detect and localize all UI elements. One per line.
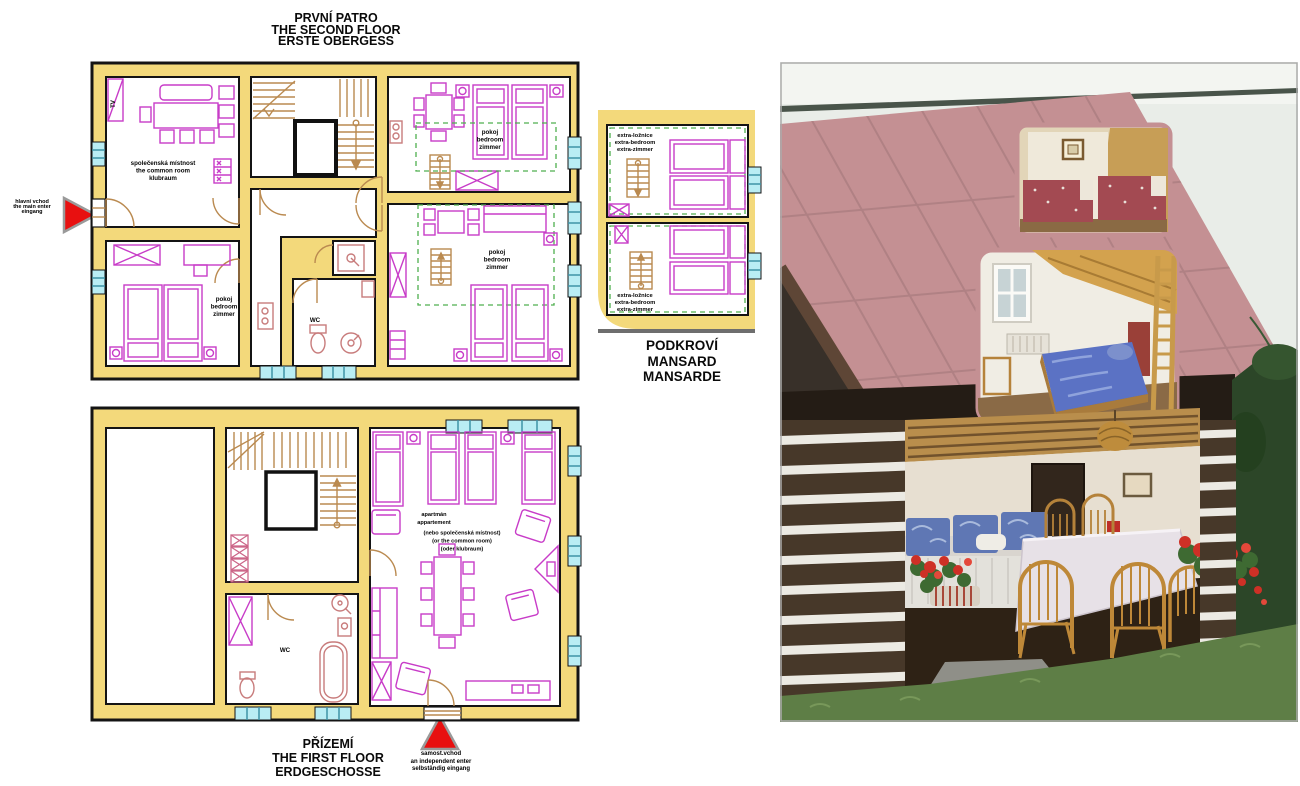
- entrance-line: an independent enter: [395, 759, 487, 767]
- title-line: PODKROVÍ: [602, 338, 762, 354]
- room-label: zimmer: [486, 264, 508, 271]
- wall-picture: [1124, 474, 1151, 496]
- room-label: extra-bedroom: [615, 140, 656, 146]
- room-label: extra-zimmer: [617, 307, 654, 313]
- ground-floor-rooms: [106, 428, 560, 706]
- entrance-line: samost.vchod: [395, 751, 487, 759]
- room-label: pokoj: [216, 296, 233, 303]
- independent-entrance-label: samost.vchod an independent enter selbst…: [395, 751, 487, 774]
- entrance-line: eingang: [2, 210, 62, 215]
- room-label: appartement: [417, 520, 451, 526]
- room-label: pokoj: [482, 129, 499, 136]
- room-label: bedroom: [211, 304, 238, 311]
- wc-label: WC: [280, 647, 291, 654]
- first-floor-plan: společenská místnost the common room klu…: [88, 59, 585, 390]
- first-floor-title: PRVNÍ PATRO THE SECOND FLOOR ERSTE OBERG…: [240, 13, 432, 48]
- attic-bedroom-inset: [1017, 125, 1170, 235]
- house-photo: [780, 62, 1298, 722]
- tv-label: TV: [110, 99, 117, 108]
- room-label: bedroom: [477, 137, 504, 144]
- title-line: PŘÍZEMÍ: [232, 737, 424, 751]
- room-label: zimmer: [213, 311, 235, 318]
- bedroom-inset: [978, 250, 1177, 422]
- room-label: apartmán: [421, 512, 447, 518]
- title-line: MANSARD: [602, 354, 762, 370]
- mansard-title: PODKROVÍ MANSARD MANSARDE: [602, 338, 762, 385]
- floorplan-sheet: PRVNÍ PATRO THE SECOND FLOOR ERSTE OBERG…: [0, 0, 1300, 786]
- room-label: extra-bedroom: [615, 300, 656, 306]
- entrance-line: selbständig eingang: [395, 766, 487, 774]
- stair-shaft: [295, 121, 336, 175]
- ground-floor-plan: apartmán appartement (nebo společenská m…: [88, 404, 585, 731]
- room-label: (oder klubraum): [441, 547, 484, 553]
- mansard-plan: extra-ložnice extra-bedroom extra-zimmer…: [595, 107, 770, 335]
- title-line: MANSARDE: [602, 369, 762, 385]
- room-label: bedroom: [484, 257, 511, 264]
- room-label: klubraum: [149, 175, 177, 182]
- bench-cushion: [930, 586, 980, 606]
- ladder-to-mansard-2: [431, 249, 451, 285]
- wc-label: WC: [310, 317, 321, 324]
- room-label: extra-zimmer: [617, 147, 654, 153]
- main-entrance-label: hlavní vchod the main enter eingang: [2, 200, 62, 215]
- room-label: extra-ložnice: [617, 293, 653, 299]
- title-line: ERSTE OBERGESS: [240, 36, 432, 48]
- room-label: (or the common room): [432, 539, 492, 545]
- independent-entrance-steps: [424, 707, 461, 720]
- stair-shaft: [266, 472, 316, 529]
- log-wall-left: [780, 420, 917, 717]
- room-label: the common room: [136, 168, 190, 175]
- room-label: (nebo společenská místnost): [423, 531, 500, 537]
- room-label: zimmer: [479, 144, 501, 151]
- mansard-shadow: [598, 329, 755, 333]
- room-label: společenská místnost: [131, 160, 196, 167]
- room-label: extra-ložnice: [617, 133, 653, 139]
- entrance-steps: [92, 199, 105, 227]
- room-label: pokoj: [489, 249, 506, 256]
